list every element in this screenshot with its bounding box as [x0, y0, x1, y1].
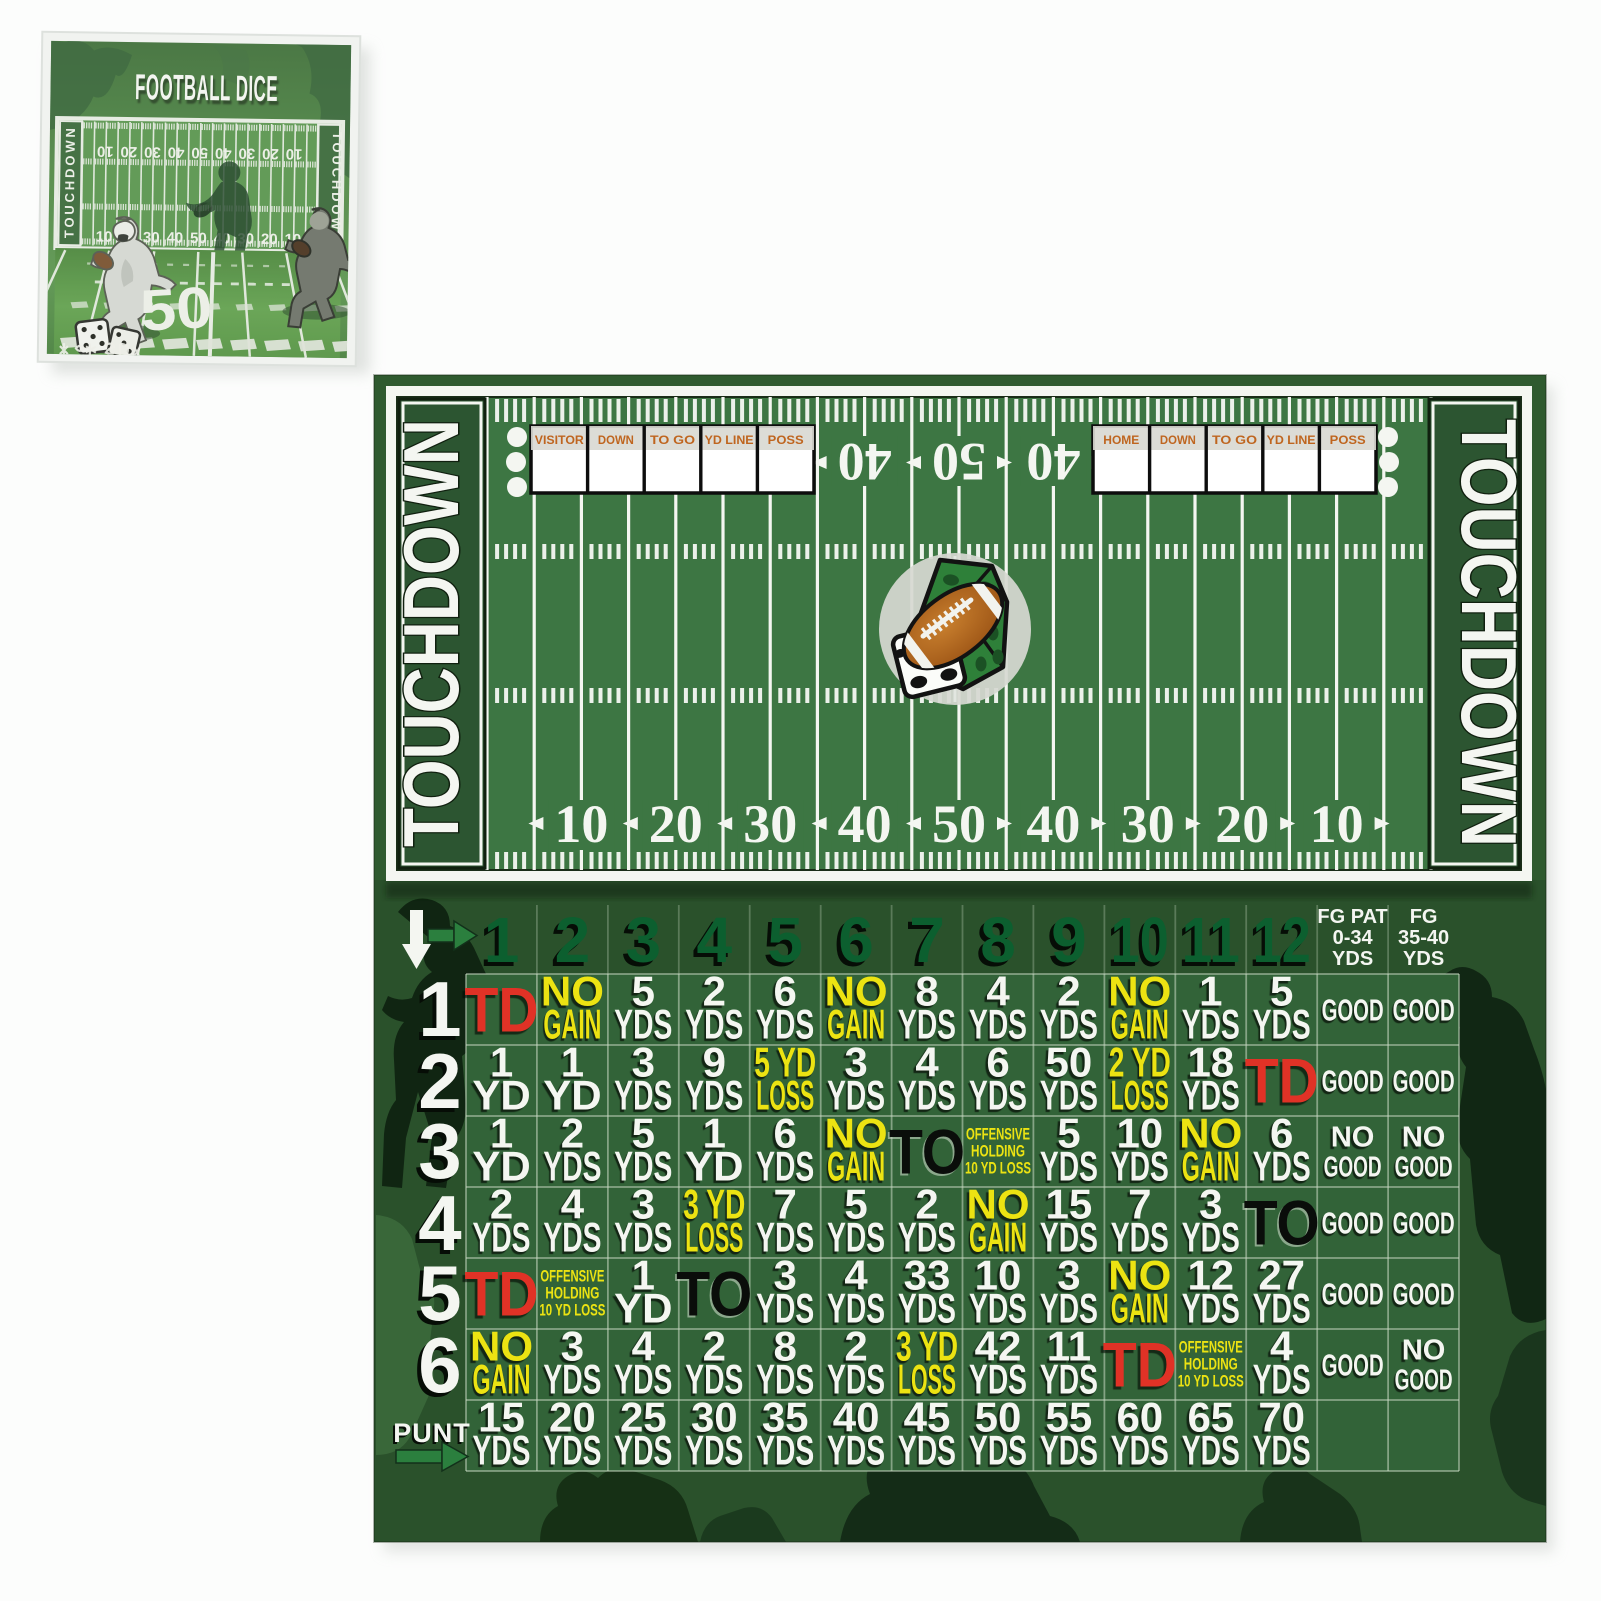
svg-text:YDS: YDS [1253, 1001, 1311, 1048]
svg-text:20: 20 [649, 794, 703, 854]
svg-text:YDS: YDS [969, 1427, 1027, 1474]
svg-text:POSS: POSS [1330, 433, 1366, 447]
svg-text:YDS: YDS [898, 1427, 956, 1474]
svg-text:TO: TO [1244, 1189, 1320, 1259]
svg-text:TD: TD [465, 1260, 539, 1330]
svg-text:NO: NO [1402, 1335, 1446, 1367]
svg-text:YDS: YDS [1332, 948, 1373, 970]
svg-text:FG PAT: FG PAT [1317, 906, 1387, 928]
svg-text:TO: TO [676, 1260, 752, 1330]
svg-text:YDS: YDS [898, 1072, 956, 1119]
svg-text:12: 12 [1253, 904, 1311, 976]
svg-text:6: 6 [418, 1321, 461, 1409]
svg-text:YDS: YDS [543, 1427, 601, 1474]
svg-text:NO: NO [1331, 1122, 1375, 1154]
svg-text:TD: TD [1103, 1331, 1177, 1401]
svg-text:YDS: YDS [1182, 1285, 1240, 1332]
svg-text:YDS: YDS [1403, 948, 1444, 970]
svg-text:GOOD: GOOD [1393, 993, 1455, 1028]
svg-text:7: 7 [909, 904, 945, 976]
svg-text:TOUCHDOWN: TOUCHDOWN [1445, 419, 1533, 847]
svg-text:YDS: YDS [543, 1214, 601, 1261]
svg-text:GOOD: GOOD [1393, 1277, 1455, 1312]
svg-text:LOSS: LOSS [685, 1214, 743, 1261]
svg-text:YDS: YDS [473, 1427, 531, 1474]
svg-text:10: 10 [1310, 794, 1364, 854]
svg-text:35-40: 35-40 [1398, 927, 1449, 949]
svg-text:10: 10 [1111, 904, 1169, 976]
svg-text:50: 50 [932, 794, 986, 854]
svg-text:GOOD: GOOD [1322, 1348, 1384, 1383]
svg-text:YDS: YDS [685, 1427, 743, 1474]
svg-text:TO GO: TO GO [1212, 433, 1257, 447]
svg-text:GOOD: GOOD [1322, 993, 1384, 1028]
svg-text:40: 40 [1026, 794, 1080, 854]
svg-text:TD: TD [1245, 1047, 1319, 1117]
svg-text:10: 10 [554, 794, 608, 854]
svg-text:YDS: YDS [1253, 1143, 1311, 1190]
svg-text:HOME: HOME [1103, 433, 1139, 447]
svg-text:YDS: YDS [614, 1427, 672, 1474]
svg-text:GAIN: GAIN [1111, 1285, 1169, 1332]
svg-text:4: 4 [697, 904, 733, 976]
svg-text:VISITOR: VISITOR [535, 433, 584, 447]
svg-text:6: 6 [838, 904, 874, 976]
svg-text:GOOD: GOOD [1393, 1206, 1455, 1241]
svg-text:YDS: YDS [1040, 1427, 1098, 1474]
svg-text:8: 8 [980, 904, 1016, 976]
svg-text:30: 30 [743, 794, 797, 854]
svg-text:GOOD: GOOD [1324, 1152, 1382, 1184]
svg-text:YDS: YDS [969, 1072, 1027, 1119]
svg-text:GOOD: GOOD [1322, 1277, 1384, 1312]
svg-text:GOOD: GOOD [1322, 1206, 1384, 1241]
svg-text:DOWN: DOWN [598, 433, 634, 447]
svg-text:2: 2 [555, 904, 591, 976]
svg-text:40: 40 [1026, 432, 1080, 492]
svg-text:YDS: YDS [756, 1427, 814, 1474]
svg-text:GOOD: GOOD [1322, 1064, 1384, 1099]
svg-text:YDS: YDS [1111, 1427, 1169, 1474]
svg-text:TO: TO [889, 1118, 965, 1188]
svg-text:PUNT: PUNT [393, 1418, 471, 1448]
svg-text:YDS: YDS [1253, 1427, 1311, 1474]
svg-text:10 YD LOSS: 10 YD LOSS [965, 1159, 1031, 1178]
svg-text:NO: NO [1402, 1122, 1446, 1154]
svg-text:TD: TD [465, 976, 539, 1046]
svg-text:10 YD LOSS: 10 YD LOSS [1178, 1372, 1244, 1391]
svg-text:11: 11 [1182, 904, 1240, 976]
svg-text:20: 20 [1215, 794, 1269, 854]
svg-text:YD LINE: YD LINE [1267, 433, 1316, 447]
svg-text:POSS: POSS [768, 433, 804, 447]
svg-text:0-34: 0-34 [1333, 927, 1374, 949]
svg-text:50: 50 [932, 432, 986, 492]
svg-text:GOOD: GOOD [1395, 1365, 1453, 1397]
svg-text:GOOD: GOOD [1395, 1152, 1453, 1184]
svg-text:GOOD: GOOD [1393, 1064, 1455, 1099]
svg-text:YDS: YDS [1182, 1427, 1240, 1474]
svg-text:30: 30 [1121, 794, 1175, 854]
svg-text:YD LINE: YD LINE [705, 433, 754, 447]
svg-text:YDS: YDS [473, 1214, 531, 1261]
svg-text:9: 9 [1051, 904, 1087, 976]
svg-text:FG: FG [1410, 906, 1438, 928]
svg-text:3: 3 [626, 904, 662, 976]
svg-text:TOUCHDOWN: TOUCHDOWN [387, 419, 475, 847]
svg-text:TO GO: TO GO [650, 433, 695, 447]
svg-text:1: 1 [484, 904, 520, 976]
svg-text:10 YD LOSS: 10 YD LOSS [539, 1301, 605, 1320]
svg-text:DOWN: DOWN [1160, 433, 1196, 447]
svg-text:40: 40 [838, 794, 892, 854]
svg-text:YDS: YDS [827, 1427, 885, 1474]
svg-text:40: 40 [838, 432, 892, 492]
svg-text:5: 5 [767, 904, 803, 976]
